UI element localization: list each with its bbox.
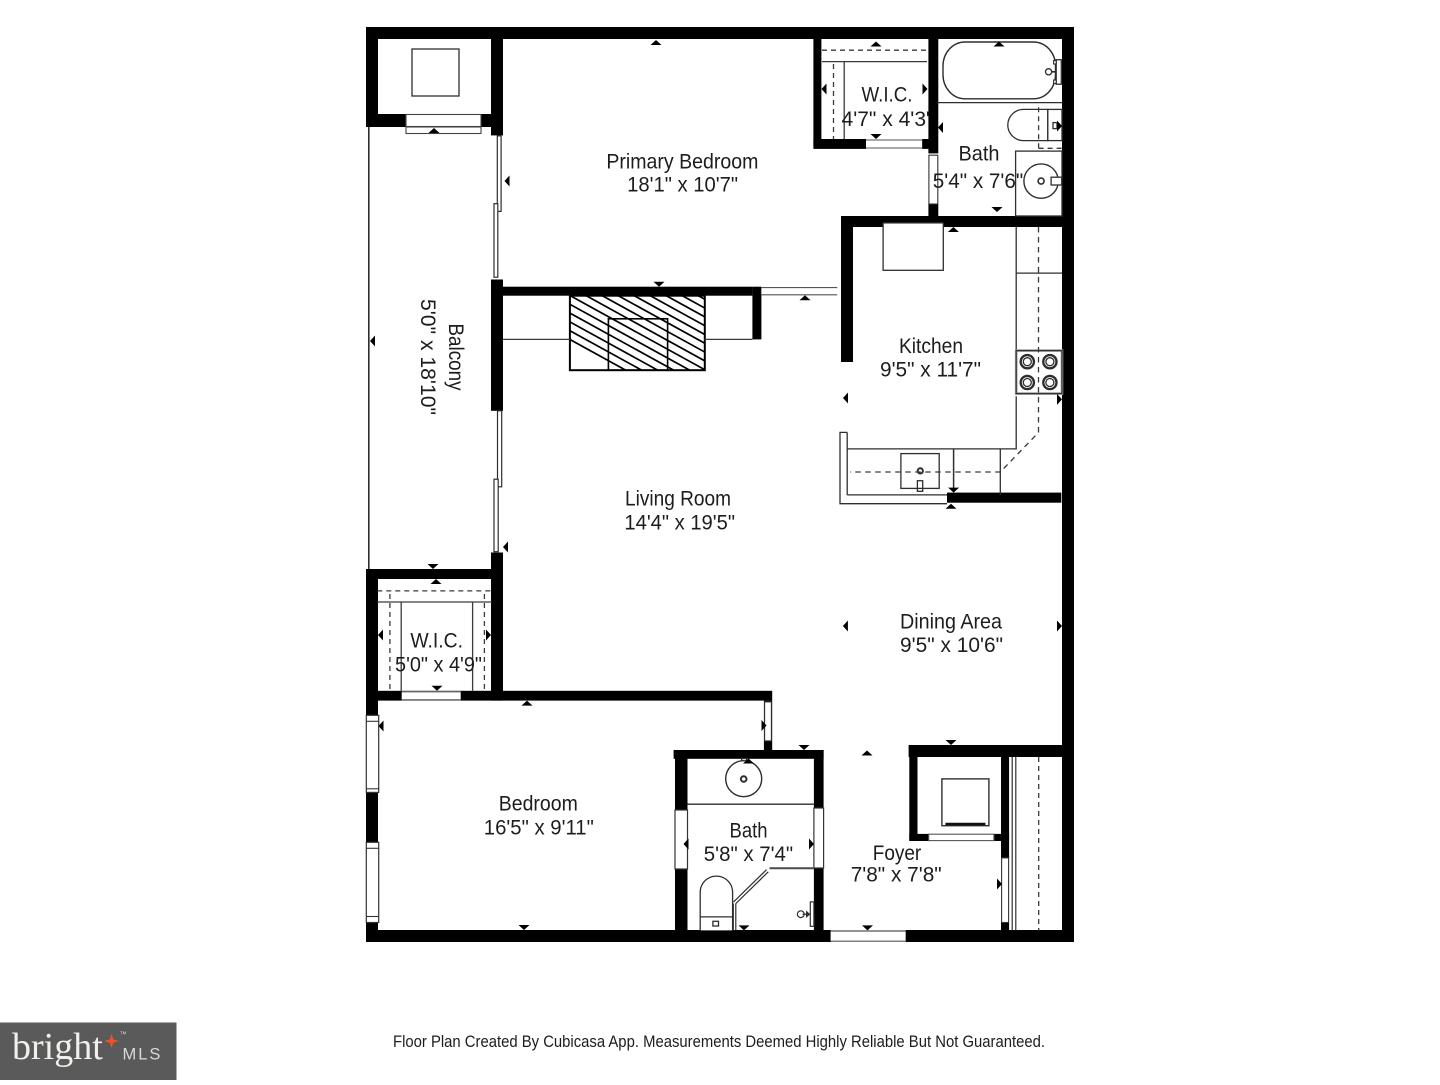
svg-text:Primary Bedroom: Primary Bedroom [606,150,758,173]
svg-text:7'8" x 7'8": 7'8" x 7'8" [851,863,942,886]
svg-text:5'8" x 7'4": 5'8" x 7'4" [704,843,793,866]
svg-text:9'5" x 11'7": 9'5" x 11'7" [880,359,981,382]
svg-text:Bath: Bath [730,819,768,842]
svg-text:W.I.C.: W.I.C. [410,630,463,653]
svg-text:9'5" x 10'6": 9'5" x 10'6" [900,634,1003,657]
svg-text:W.I.C.: W.I.C. [862,84,913,107]
svg-text:18'1" x 10'7": 18'1" x 10'7" [627,173,738,196]
svg-text:4'7" x 4'3": 4'7" x 4'3" [842,108,934,131]
svg-text:5'4" x 7'6": 5'4" x 7'6" [933,170,1024,193]
svg-text:Bedroom: Bedroom [499,792,578,815]
svg-text:Foyer: Foyer [873,842,922,865]
svg-text:Bath: Bath [959,143,1000,166]
svg-text:14'4" x 19'5": 14'4" x 19'5" [624,511,735,534]
svg-text:5'0" x 18'10": 5'0" x 18'10" [416,299,439,415]
svg-text:Living Room: Living Room [625,488,731,511]
svg-text:Dining Area: Dining Area [900,611,1002,634]
svg-text:Balcony: Balcony [444,324,467,391]
svg-text:Kitchen: Kitchen [899,335,963,358]
svg-text:MLS: MLS [123,1046,163,1064]
svg-text:bright: bright [12,1026,103,1068]
svg-text:16'5" x 9'11": 16'5" x 9'11" [484,817,594,840]
svg-text:Floor Plan Created By Cubicasa: Floor Plan Created By Cubicasa App. Meas… [393,1032,1045,1051]
svg-text:5'0" x 4'9": 5'0" x 4'9" [395,654,482,677]
svg-text:™: ™ [120,1030,128,1039]
